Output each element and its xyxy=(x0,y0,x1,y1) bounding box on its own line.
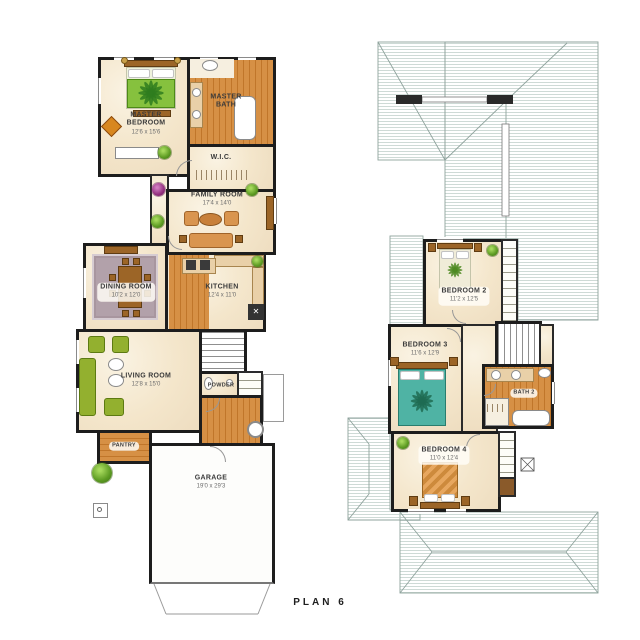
plant-icon xyxy=(92,463,112,483)
dining-chair xyxy=(133,310,140,317)
room-wic xyxy=(187,144,276,192)
dining-chair xyxy=(133,258,140,265)
dining-chair xyxy=(122,258,129,265)
dresser xyxy=(115,147,159,159)
floor-plan-sheet: ✕ MASTER BEDROOM 12'6 x 15'6 MASTER BATH… xyxy=(0,0,640,640)
island-sink xyxy=(186,260,196,270)
room-label-bedroom-4: BEDROOM 4 11'0 x 12'4 xyxy=(418,446,469,465)
window xyxy=(81,268,86,298)
master-bed-headboard xyxy=(124,60,178,67)
room-name: BEDROOM 2 xyxy=(441,288,486,295)
room-label-garage: GARAGE 19'0 x 29'3 xyxy=(195,475,228,492)
sink xyxy=(192,110,201,119)
armchair xyxy=(112,336,129,353)
closet-bedroom-4 xyxy=(498,431,516,479)
armchair xyxy=(184,211,199,226)
window xyxy=(96,78,101,104)
bed-pillow xyxy=(456,251,469,259)
entry-column xyxy=(247,421,264,438)
bed-striped-blanket xyxy=(422,462,458,498)
plant-icon xyxy=(158,146,171,159)
toilet xyxy=(538,368,551,378)
room-name: W.I.C. xyxy=(211,154,232,161)
palm-leaf-icon xyxy=(445,260,465,280)
room-label-master-bedroom: MASTER BEDROOM 12'6 x 15'6 xyxy=(122,112,170,137)
chimney-right xyxy=(487,95,513,104)
window xyxy=(408,509,434,514)
palm-leaf-icon xyxy=(407,386,437,416)
closet-rod xyxy=(487,404,507,412)
utility-chase xyxy=(498,477,516,497)
nightstand xyxy=(461,496,470,506)
room-label-dining-room: DINING ROOM 10'2 x 12'0 xyxy=(97,283,155,302)
room-dims: 11'0 x 12'4 xyxy=(421,456,466,463)
bed-pillow xyxy=(424,371,444,380)
plant-icon xyxy=(397,437,409,449)
stair-landing xyxy=(539,324,554,367)
purple-plant-icon xyxy=(152,183,165,196)
sofa xyxy=(79,358,96,416)
bath-closet xyxy=(485,398,509,426)
window xyxy=(238,55,256,60)
room-label-family-room: FAMILY ROOM 17'4 x 14'0 xyxy=(191,192,243,209)
room-name: PANTRY xyxy=(112,443,136,449)
sink xyxy=(511,370,521,380)
armchair xyxy=(224,211,239,226)
island-sink xyxy=(200,260,210,270)
room-name: BEDROOM 3 xyxy=(402,342,447,349)
plan-title: PLAN 6 xyxy=(0,597,640,608)
room-name: FAMILY ROOM xyxy=(191,192,243,199)
room-dims: 12'6 x 15'6 xyxy=(122,129,170,136)
range-icon: ✕ xyxy=(248,304,264,320)
sink xyxy=(192,88,201,97)
bed-pillow xyxy=(400,371,420,380)
room-name: GARAGE xyxy=(195,475,228,482)
room-dims: 12'8 x 15'0 xyxy=(121,382,171,389)
entry-porch xyxy=(263,374,284,422)
ottoman xyxy=(104,398,124,416)
room-name: BATH 2 xyxy=(513,390,534,396)
room-name: POWDER xyxy=(208,383,235,389)
skylight-square xyxy=(521,458,534,471)
oval-table xyxy=(108,358,124,371)
buffet xyxy=(104,246,138,254)
bathtub xyxy=(512,410,550,426)
chimney-left xyxy=(396,95,422,104)
stairs-first-floor xyxy=(199,329,247,374)
dining-chair xyxy=(122,310,129,317)
bed-pillow xyxy=(424,494,438,502)
room-name: LIVING ROOM xyxy=(121,373,171,380)
room-name: DINING ROOM xyxy=(100,284,152,291)
toilet xyxy=(202,60,218,71)
room-dims: 12'4 x 11'0 xyxy=(205,293,238,300)
room-label-bedroom-2: BEDROOM 2 11'2 x 12'5 xyxy=(438,287,489,306)
plant-icon xyxy=(487,245,498,256)
room-name: MASTER BEDROOM xyxy=(127,112,166,127)
room-label-master-bath: MASTER BATH xyxy=(209,94,243,111)
room-dims: 10'2 x 12'0 xyxy=(100,293,152,300)
bedpost-finial xyxy=(121,57,128,64)
window xyxy=(446,509,466,514)
roof-strip-left xyxy=(390,236,423,326)
room-dims: 19'0 x 29'3 xyxy=(195,484,228,491)
room-dims: 11'6 x 12'9 xyxy=(402,351,447,358)
plant-icon xyxy=(151,215,164,228)
nightstand xyxy=(409,496,418,506)
dining-chair xyxy=(144,274,151,281)
room-label-bath-2: BATH 2 xyxy=(510,389,537,398)
nightstand xyxy=(390,357,399,366)
media-console xyxy=(266,196,274,230)
plant-icon xyxy=(252,256,263,267)
room-label-powder: POWDER xyxy=(208,383,235,390)
room-label-living-room: LIVING ROOM 12'8 x 15'0 xyxy=(121,373,171,390)
room-label-wic: W.I.C. xyxy=(211,154,232,162)
window xyxy=(437,237,463,242)
coat-closet xyxy=(237,371,263,398)
room-dims: 11'2 x 12'5 xyxy=(441,297,486,304)
stairs-second-floor xyxy=(495,321,542,367)
sink xyxy=(491,370,501,380)
room-name: MASTER BATH xyxy=(210,94,241,109)
nightstand xyxy=(449,357,458,366)
room-dims: 17'4 x 14'0 xyxy=(191,201,243,208)
bed-headboard xyxy=(420,502,460,509)
room-name: KITCHEN xyxy=(205,284,238,291)
kitchen-counter xyxy=(252,267,264,305)
window xyxy=(274,198,279,224)
roof-vertical-vent xyxy=(502,124,509,216)
palm-leaf-icon xyxy=(134,76,168,110)
step-dot xyxy=(97,507,102,512)
dining-chair xyxy=(109,274,116,281)
linen-closet xyxy=(501,239,518,327)
room-name: BEDROOM 4 xyxy=(421,447,466,454)
side-table xyxy=(235,235,243,243)
nightstand xyxy=(428,243,436,252)
roof-bottom-right xyxy=(400,512,598,593)
sofa xyxy=(189,233,233,248)
closet-rod xyxy=(196,170,248,180)
window xyxy=(552,382,557,404)
bed-headboard xyxy=(396,362,448,369)
nightstand xyxy=(474,243,482,252)
bed-pillow xyxy=(441,251,454,259)
room-label-pantry: PANTRY xyxy=(109,442,139,451)
bed-pillow xyxy=(441,494,455,502)
bedpost-finial xyxy=(174,57,181,64)
armchair xyxy=(88,336,105,353)
room-label-kitchen: KITCHEN 12'4 x 11'0 xyxy=(205,284,238,301)
coffee-table xyxy=(199,213,222,226)
room-garage xyxy=(149,443,275,584)
room-label-bedroom-3: BEDROOM 3 11'6 x 12'9 xyxy=(402,342,447,359)
plant-icon xyxy=(246,184,258,196)
roof-ridge-vent xyxy=(422,97,487,102)
